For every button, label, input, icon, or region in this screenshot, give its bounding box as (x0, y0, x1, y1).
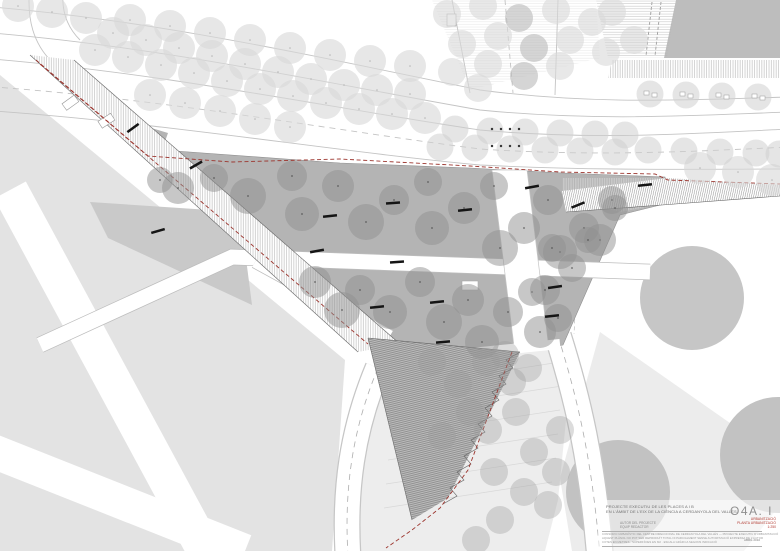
terrace-tree (444, 370, 472, 398)
tree-grate (652, 93, 657, 97)
tree-center-mark (289, 126, 291, 128)
median-tree (462, 135, 489, 162)
tree-center-mark (431, 227, 433, 229)
terrace-tree (418, 348, 446, 376)
tree-center-mark (499, 247, 501, 249)
tree-center-mark (169, 25, 171, 27)
tree-grate (644, 91, 649, 95)
tree-center-mark (112, 32, 114, 34)
tree-center-mark (325, 102, 327, 104)
tree-center-mark (699, 167, 701, 169)
terrace-tree (486, 506, 514, 534)
tree-center-mark (329, 54, 331, 56)
tree-grate (760, 96, 765, 100)
crosswalk-dot (509, 145, 511, 147)
median-tree (637, 81, 664, 108)
terrace-tree (520, 438, 548, 466)
median-tree (497, 136, 524, 163)
tree-grate (680, 92, 685, 96)
plaza-tree-light (433, 0, 461, 28)
tree-center-mark (247, 195, 249, 197)
crosswalk-dot (509, 128, 511, 130)
tree-center-mark (85, 17, 87, 19)
terrace-tree (510, 478, 538, 506)
tree-center-mark (17, 5, 19, 7)
tree-center-mark (463, 207, 465, 209)
tree-center-mark (359, 289, 361, 291)
tree-center-mark (365, 221, 367, 223)
tree-center-mark (219, 110, 221, 112)
tree-grate (688, 94, 693, 98)
tree-center-mark (277, 71, 279, 73)
tree-center-mark (292, 95, 294, 97)
sheet-code: O4A. I (730, 504, 773, 518)
median-tree (707, 139, 734, 166)
plaza-tree-light (592, 38, 620, 66)
tree-center-mark (481, 341, 483, 343)
tree-center-mark (159, 179, 161, 181)
tree-center-mark (523, 227, 525, 229)
median-tree (427, 134, 454, 161)
terrace-tree (546, 416, 574, 444)
tree-center-mark (467, 299, 469, 301)
plaza-tree-light (620, 26, 648, 54)
tree-center-mark (507, 311, 509, 313)
tree-center-mark (551, 247, 553, 249)
plaza-tree-light (484, 22, 512, 50)
tree-center-mark (369, 60, 371, 62)
tree-center-mark (393, 199, 395, 201)
tree-center-mark (314, 281, 316, 283)
tree-center-mark (178, 47, 180, 49)
tree-center-mark (211, 55, 213, 57)
median-tree (635, 137, 662, 164)
tree-center-mark (226, 80, 228, 82)
median-tree (567, 138, 594, 165)
tree-grate (716, 93, 721, 97)
tree-center-mark (129, 19, 131, 21)
tree-center-mark (310, 78, 312, 80)
terrace-tree (428, 422, 456, 450)
tree-center-mark (184, 102, 186, 104)
crosswalk-dot (491, 145, 493, 147)
tree-center-mark (737, 171, 739, 173)
site-plan-canvas: PROJECTE EXECUTIU DE LES PLACES A I B EN… (0, 0, 780, 551)
tree-center-mark (443, 321, 445, 323)
tree-center-mark (177, 187, 179, 189)
tree-center-mark (358, 108, 360, 110)
tree-center-mark (343, 84, 345, 86)
terrace-tree (474, 416, 502, 444)
tree-grate (752, 94, 757, 98)
tree-center-mark (389, 311, 391, 313)
crosswalk-dot (500, 128, 502, 130)
tree-center-mark (160, 64, 162, 66)
plaza-tree-light (546, 52, 574, 80)
tree-center-mark (771, 179, 773, 181)
median-tree (602, 139, 629, 166)
tree-center-mark (337, 185, 339, 187)
crosswalk-dot (518, 128, 520, 130)
sheet-date: ABRIL 2010 (744, 538, 760, 542)
median-tree (671, 138, 698, 165)
terrace-tree (542, 458, 570, 486)
terrace-tree (534, 491, 562, 519)
tree-center-mark (544, 289, 546, 291)
tree-center-mark (291, 175, 293, 177)
tree-center-mark (547, 199, 549, 201)
tree-center-mark (213, 177, 215, 179)
credit-line2: EQUIP REDACTOR (620, 526, 649, 530)
crosswalk-dot (500, 145, 502, 147)
tree-center-mark (127, 56, 129, 58)
tree-center-mark (427, 181, 429, 183)
plaza-tree-light (448, 30, 476, 58)
plaza-tree-light (510, 62, 538, 90)
tree-center-mark (493, 185, 495, 187)
tree-center-mark (571, 267, 573, 269)
crosswalk-dot (491, 128, 493, 130)
plaza-tree-light (474, 50, 502, 78)
tree-center-mark (539, 331, 541, 333)
urban-plan-drawing (0, 0, 780, 551)
crosswalk-dot (518, 145, 520, 147)
tree-center-mark (376, 89, 378, 91)
tree-center-mark (301, 213, 303, 215)
tree-center-mark (419, 281, 421, 283)
terrace-tree (514, 354, 542, 382)
title-block: PROJECTE EXECUTIU DE LES PLACES A I B EN… (598, 500, 780, 551)
median-tree (743, 140, 770, 167)
tree-center-mark (341, 309, 343, 311)
terrace-tree (480, 458, 508, 486)
project-title-line2: EN L'ÀMBIT DE L'EIX DE LA CIÈNCIA A CERD… (606, 510, 737, 515)
tree-center-mark (259, 88, 261, 90)
tree-center-mark (587, 239, 589, 241)
plaza-tree-light (520, 34, 548, 62)
tree-center-mark (254, 118, 256, 120)
tree-center-mark (249, 39, 251, 41)
median-tree (532, 137, 559, 164)
median-tree (673, 82, 700, 109)
tree-center-mark (289, 47, 291, 49)
median-tree (709, 83, 736, 110)
tree-center-mark (614, 207, 616, 209)
sheet-scale: 1:250 (708, 526, 776, 530)
tree-center-mark (409, 65, 411, 67)
tree-center-mark (244, 63, 246, 65)
median-tree (745, 84, 772, 111)
tree-center-mark (391, 113, 393, 115)
plaza-tree-light (438, 58, 466, 86)
note-line3: COTES EN METRES · SUPERFÍCIES EN M2 · ES… (602, 541, 717, 544)
terrace-tree (502, 398, 530, 426)
tree-center-mark (193, 72, 195, 74)
plaza-tree-light (556, 26, 584, 54)
tree-center-mark (409, 93, 411, 95)
plaza-tree-light (464, 74, 492, 102)
tree-center-mark (557, 317, 559, 319)
tree-center-mark (424, 117, 426, 119)
tree-center-mark (51, 11, 53, 13)
tree-center-mark (94, 49, 96, 51)
tree-center-mark (145, 39, 147, 41)
tree-center-mark (149, 94, 151, 96)
tree-center-mark (209, 32, 211, 34)
tree-grate (724, 95, 729, 99)
